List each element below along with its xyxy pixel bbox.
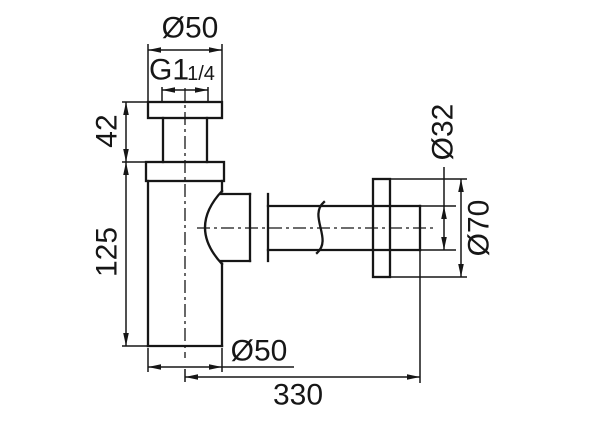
bottle-trap-drawing: Ø50 G1 1/4 42 125 Ø32 Ø70 Ø50 330 [0,0,600,427]
dimension-lines [122,44,467,383]
arrowhead [441,206,447,219]
label-body-diameter: Ø50 [231,335,288,368]
arrowhead [162,87,175,93]
arrowhead [209,364,222,370]
label-upper-height: 42 [91,114,124,147]
label-top-diameter: Ø50 [162,12,219,45]
label-pipe-diameter: Ø32 [427,104,460,161]
label-body-height: 125 [91,227,124,277]
arrowhead [123,333,129,346]
part-outline [146,102,420,346]
arrowhead [123,162,129,175]
dimension-labels: Ø50 G1 1/4 42 125 Ø32 Ø70 Ø50 330 [91,12,496,412]
arrowhead [185,374,198,380]
arrowhead [458,264,464,277]
arrowhead [195,87,208,93]
label-overall-length: 330 [273,379,323,412]
arrowhead [148,47,161,53]
arrowhead [123,149,129,162]
label-thread-fraction: 1/4 [187,63,215,85]
arrowhead [123,102,129,115]
label-flange-diameter: Ø70 [463,200,496,257]
technical-drawing-canvas: Ø50 G1 1/4 42 125 Ø32 Ø70 Ø50 330 [0,0,600,427]
label-thread: G1 [149,54,189,87]
arrowhead [441,237,447,250]
arrowhead [407,374,420,380]
arrowhead [458,179,464,192]
arrowhead [148,364,161,370]
arrowhead [209,47,222,53]
